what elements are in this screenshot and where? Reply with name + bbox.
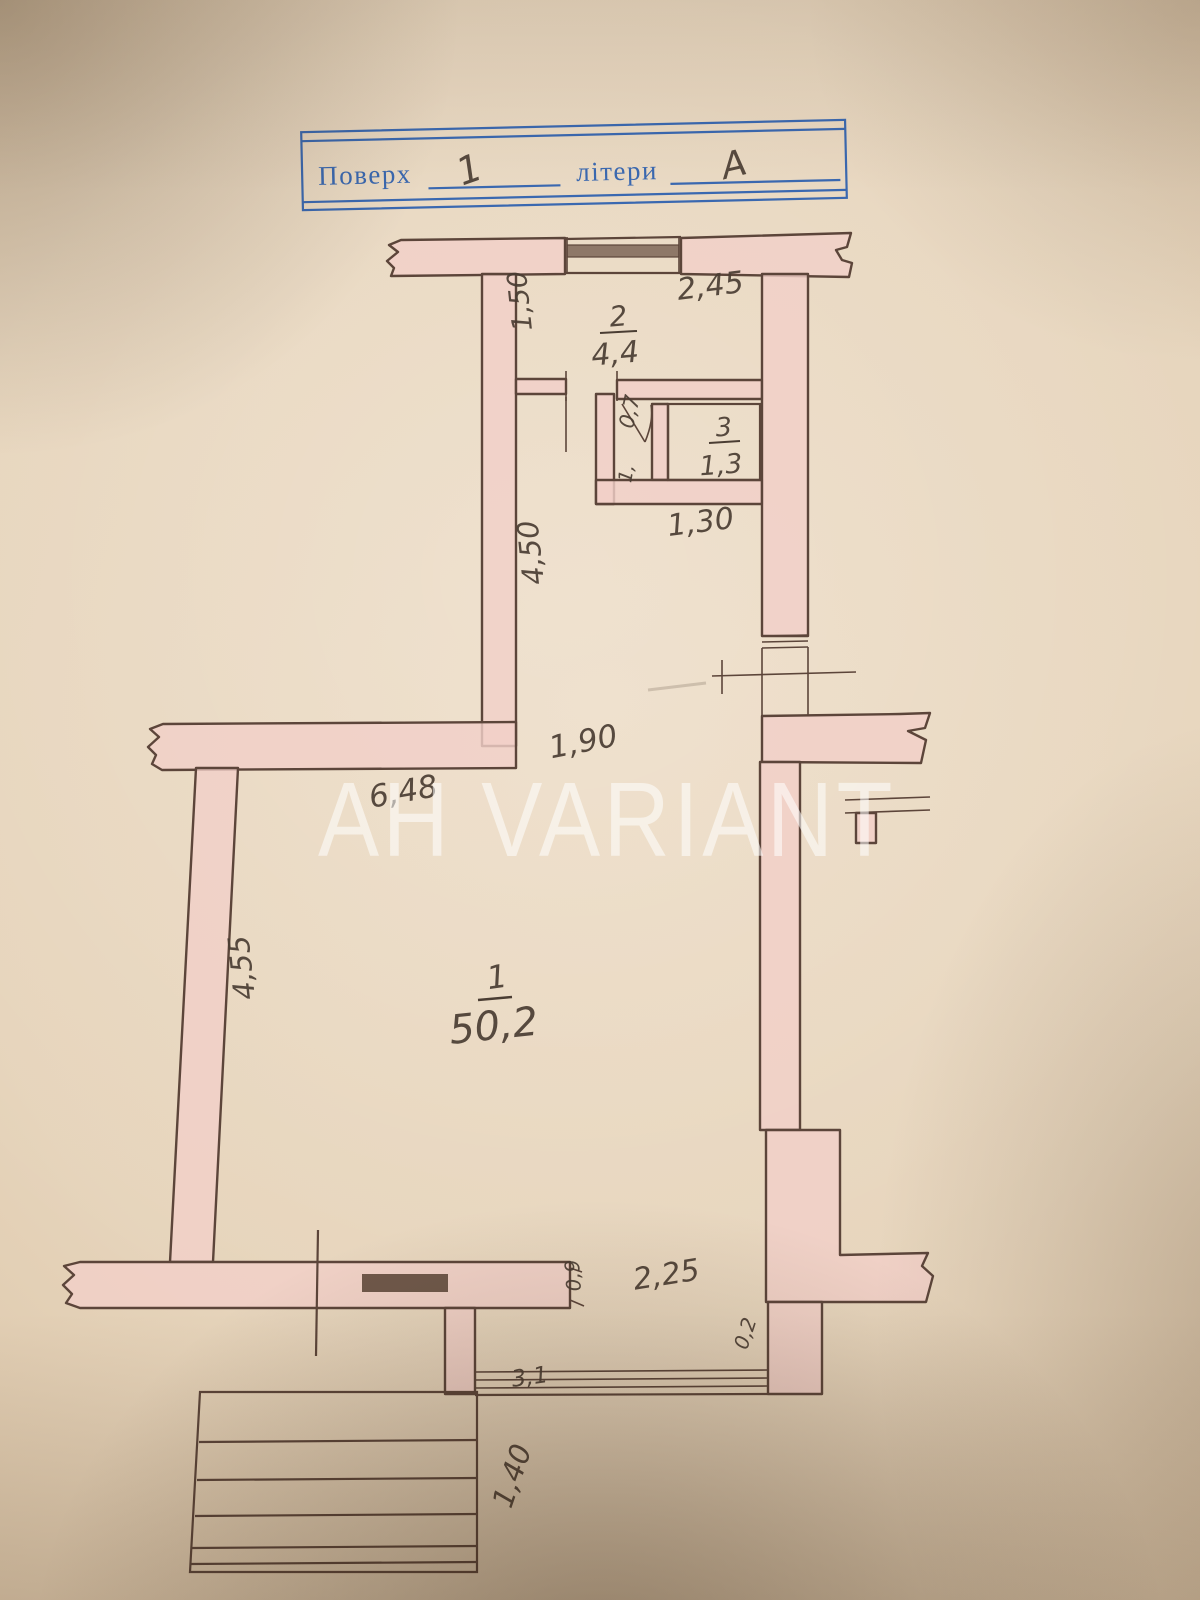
wall-wc-bottom (596, 480, 762, 504)
bottom-door-threshold (362, 1274, 448, 1292)
room2-area-label: 4,4 (590, 335, 641, 374)
room1-area-label: 50,2 (447, 999, 540, 1054)
wc-door-swing-arc (645, 405, 652, 442)
room3-number-label: 3 (715, 412, 734, 443)
stamp-floor-label: Поверх (318, 159, 412, 191)
stairs (190, 1392, 477, 1572)
wall-junction-right (762, 713, 930, 763)
top-window-band (567, 245, 679, 257)
floorplan-drawing: Поверх 1 літери А (0, 0, 1200, 1600)
dim-hall-door-mark: 1, (614, 463, 639, 485)
stamp-floor-blank-line (428, 185, 560, 188)
wall-top-left (387, 238, 565, 276)
room1-number-label: 1 (484, 957, 509, 997)
stamp-box: Поверх 1 літери А (301, 120, 847, 210)
dim-wall-mark: 0,2 (729, 1314, 762, 1352)
wall-right-upper (762, 274, 808, 636)
stamp-letters-label: літери (576, 155, 658, 187)
wall-vestibule-left (445, 1308, 475, 1394)
wall-corridor-left (482, 274, 516, 746)
wall-room2-bottom-left (516, 379, 566, 394)
dim-room2-depth: 1,50 (502, 269, 539, 332)
room3-number-underline (709, 441, 740, 443)
dim-wc-width: 1,30 (665, 501, 736, 544)
top-window (565, 237, 681, 273)
dim-room1-depth: 4,55 (221, 934, 262, 1002)
agency-watermark: АН VARIANT (318, 761, 896, 879)
right-wall-opening (712, 635, 856, 716)
pencil-smudge (648, 683, 706, 690)
dim-rear-opening: 2,25 (631, 1253, 702, 1298)
wall-lower-right (766, 1130, 933, 1302)
wall-room1-left (170, 768, 238, 1262)
dim-stairs-width: 1,40 (485, 1440, 538, 1512)
dim-vestibule-window: 3,1 (510, 1362, 550, 1393)
wall-vestibule-right (768, 1302, 822, 1394)
room2-number-label: 2 (608, 299, 629, 333)
dim-room2-width: 2,45 (675, 265, 746, 308)
room2-number-underline (600, 331, 637, 333)
bottom-door-axis-tick (316, 1230, 318, 1356)
dim-corridor-length: 4,50 (510, 519, 551, 587)
room3-area-label: 1,3 (699, 448, 744, 482)
dim-rear-door: 0,9 (560, 1259, 586, 1292)
room1-number-underline (478, 997, 512, 1000)
stamp-letters-value: А (715, 142, 750, 188)
dim-passage-width: 1,90 (546, 718, 621, 767)
floorplan-photo: Поверх 1 літери А (0, 0, 1200, 1600)
wall-wc-left (652, 404, 668, 480)
wall-end-hook-bottom (570, 1300, 584, 1306)
stamp-letters-blank-line (670, 180, 840, 184)
wall-room2-bottom-right (617, 380, 762, 399)
